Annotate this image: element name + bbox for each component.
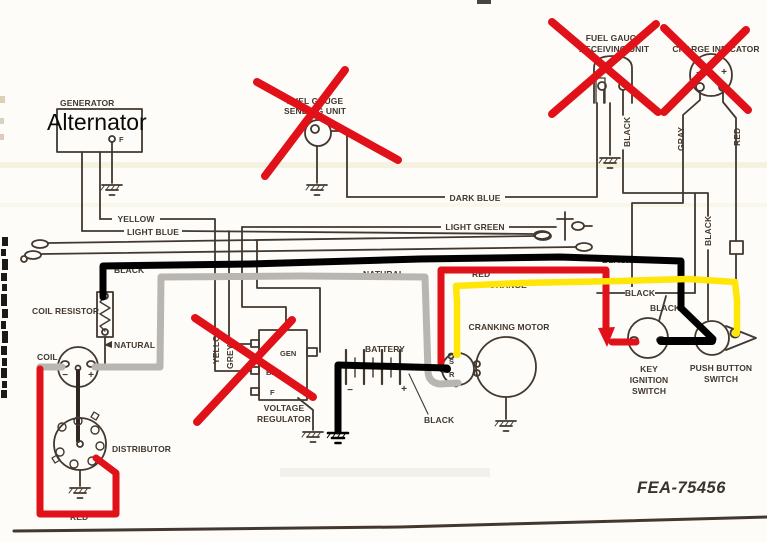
push-button-label-1: PUSH BUTTON [690, 363, 752, 373]
marker-overlays [40, 22, 748, 514]
regulator-gen-terminal: GEN [280, 349, 296, 358]
page-edge-text-fragment [1, 237, 8, 398]
alternator-annotation: Alternator [47, 109, 147, 135]
coil-resistor-symbol [95, 292, 113, 365]
charge-indicator-plus: + [721, 67, 727, 78]
battery-symbol [346, 350, 428, 414]
charge-red-wire-label: RED [732, 128, 742, 146]
battery-black-label: BLACK [424, 415, 455, 425]
key-switch-black-label-1: BLACK [625, 288, 656, 298]
distributor-label: DISTRIBUTOR [112, 444, 171, 454]
natural-upper-label: NATURAL [114, 340, 155, 350]
yellow-wire-label: YELLOW [118, 214, 156, 224]
cross-out-charge-indicator [664, 28, 748, 112]
generator-f-terminal-label: F [119, 135, 124, 144]
charge-gray-wire-label: GRAY [676, 127, 686, 151]
battery-minus: − [347, 385, 353, 396]
light-blue-wire-label: LIGHT BLUE [127, 227, 179, 237]
receiving-unit-black-wire-label: BLACK [622, 116, 632, 147]
light-green-wire-label: LIGHT GREEN [445, 222, 504, 232]
coil-minus: − [62, 370, 68, 381]
generator-label: GENERATOR [60, 98, 114, 108]
key-switch-label-2: IGNITION [630, 375, 669, 385]
battery-plus: + [401, 384, 407, 395]
key-switch-black-label-2: BLACK [650, 303, 681, 313]
coil-plus: + [88, 370, 94, 381]
coil-label: COIL [37, 352, 58, 362]
page-border-line [14, 517, 767, 531]
black-wire-end-dot [443, 365, 451, 373]
voltage-regulator-label-1: VOLTAGE [264, 403, 305, 413]
part-number: FEA-75456 [637, 479, 726, 497]
wiring-diagram: GENERATOR F FUEL GAUGE SENDING UNIT FUEL… [0, 0, 767, 542]
black-ground-symbol [327, 433, 348, 443]
yellow-wire-end-dot [732, 329, 740, 337]
dark-blue-wire-label: DARK BLUE [450, 193, 501, 203]
yellow-wire-start-dot [453, 350, 461, 358]
cross-out-sending-unit [257, 70, 398, 176]
solenoid-s-terminal: S [449, 357, 454, 366]
battery-label: BATTERY [365, 344, 405, 354]
voltage-regulator-label-2: REGULATOR [257, 414, 311, 424]
cranking-motor-label: CRANKING MOTOR [468, 322, 549, 332]
wiring-diagram-scan: GENERATOR F FUEL GAUGE SENDING UNIT FUEL… [0, 0, 767, 542]
right-side-black-wire-label: BLACK [703, 215, 713, 246]
coil-resistor-label: COIL RESISTOR [32, 306, 99, 316]
harness-connector [557, 212, 592, 240]
push-button-label-2: SWITCH [704, 374, 738, 384]
distributor-symbol [52, 412, 106, 498]
key-switch-label-3: SWITCH [632, 386, 666, 396]
key-switch-label-1: KEY [640, 364, 658, 374]
regulator-f-terminal: F [270, 388, 275, 397]
